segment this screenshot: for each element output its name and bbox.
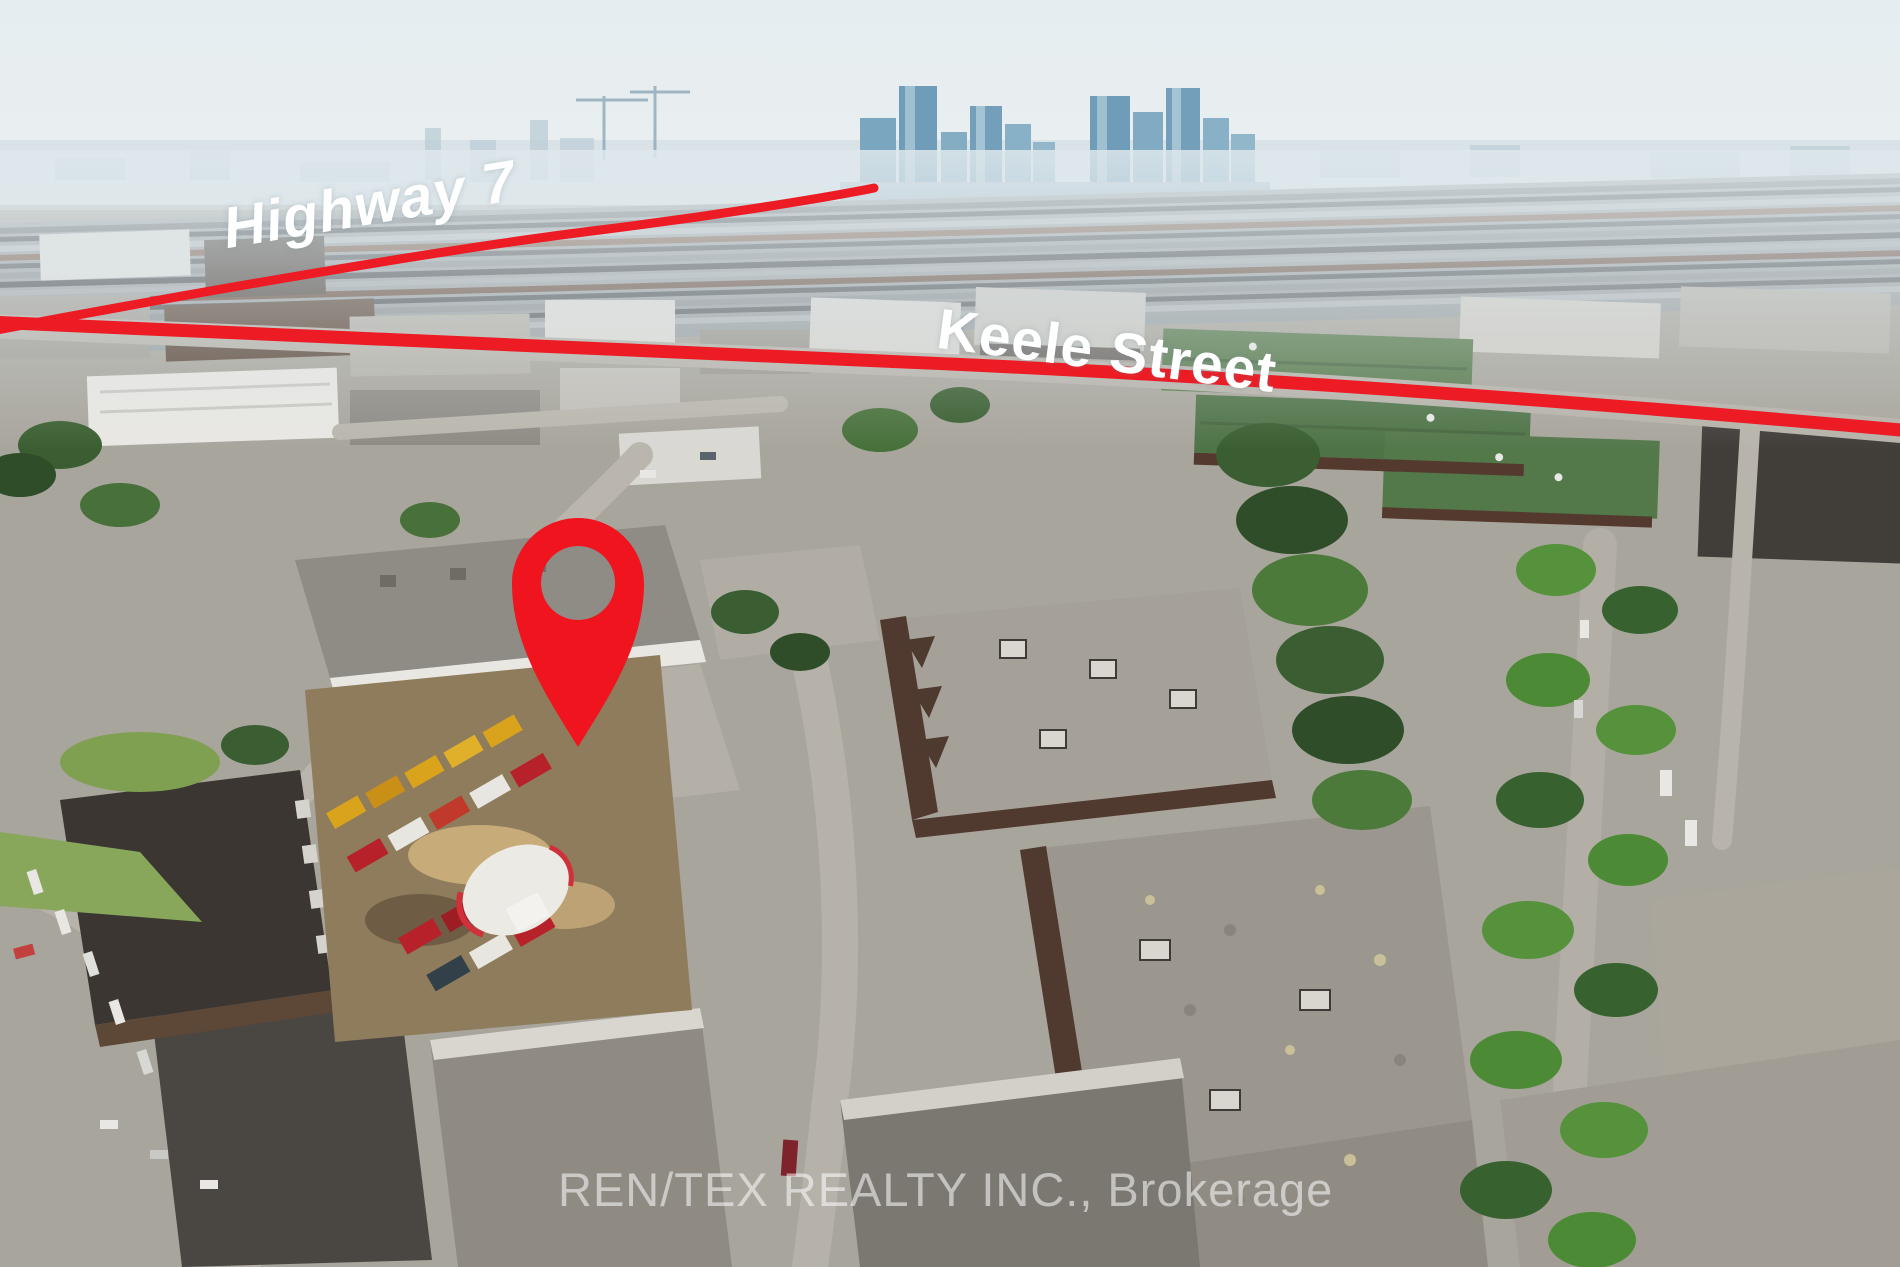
aerial-photo: Highway 7 Keele Street REN/TEX REALTY IN… bbox=[0, 0, 1900, 1267]
brokerage-watermark: REN/TEX REALTY INC., Brokerage bbox=[558, 1162, 1333, 1217]
